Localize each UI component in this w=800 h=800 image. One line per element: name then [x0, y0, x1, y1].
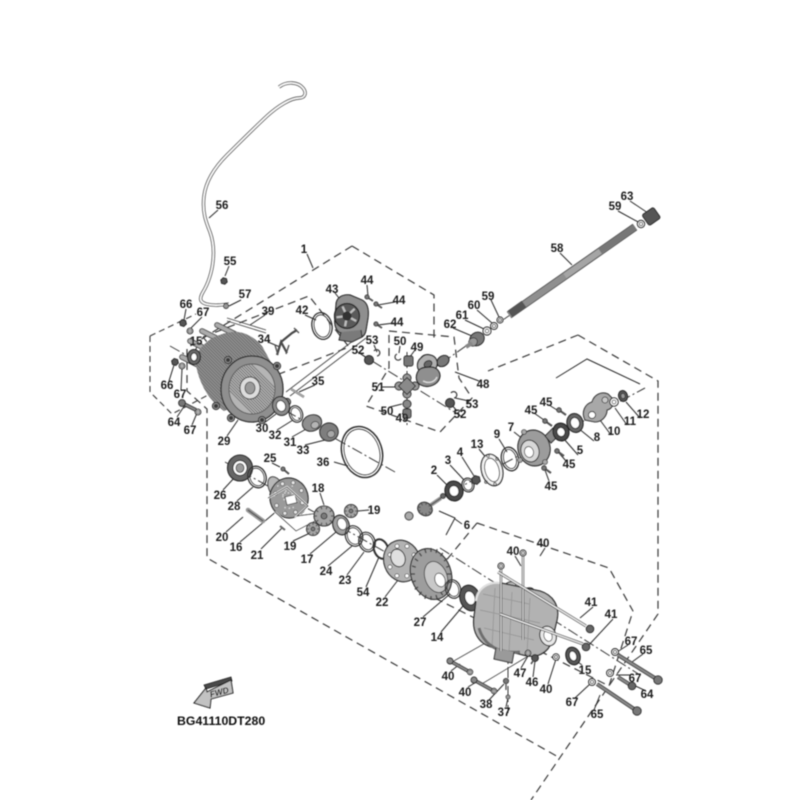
- svg-text:63: 63: [621, 191, 634, 203]
- svg-text:40: 40: [459, 687, 472, 699]
- svg-text:23: 23: [339, 575, 352, 587]
- svg-text:16: 16: [230, 542, 243, 554]
- svg-text:52: 52: [352, 345, 365, 357]
- svg-text:67: 67: [625, 636, 638, 648]
- svg-text:11: 11: [624, 416, 637, 428]
- svg-text:51: 51: [372, 382, 385, 394]
- svg-text:18: 18: [312, 483, 325, 495]
- svg-text:67: 67: [174, 389, 187, 401]
- svg-text:8: 8: [594, 432, 601, 444]
- svg-text:13: 13: [471, 439, 484, 451]
- svg-text:49: 49: [396, 413, 409, 425]
- svg-text:40: 40: [507, 546, 520, 558]
- svg-text:54: 54: [357, 587, 370, 599]
- svg-text:24: 24: [320, 566, 333, 578]
- svg-text:41: 41: [585, 597, 598, 609]
- svg-text:45: 45: [525, 405, 538, 417]
- svg-text:39: 39: [262, 306, 275, 318]
- svg-text:1: 1: [301, 244, 308, 256]
- svg-text:45: 45: [540, 397, 553, 409]
- svg-text:43: 43: [326, 284, 339, 296]
- svg-text:14: 14: [431, 632, 444, 644]
- svg-text:40: 40: [540, 684, 553, 696]
- svg-text:49: 49: [411, 342, 424, 354]
- svg-text:31: 31: [284, 437, 297, 449]
- svg-text:28: 28: [228, 501, 241, 513]
- svg-text:58: 58: [551, 243, 564, 255]
- svg-text:BG41110DT280: BG41110DT280: [177, 714, 265, 728]
- svg-text:45: 45: [545, 481, 558, 493]
- svg-text:56: 56: [216, 200, 229, 212]
- svg-text:17: 17: [301, 554, 314, 566]
- svg-text:44: 44: [361, 275, 374, 287]
- svg-text:66: 66: [180, 299, 193, 311]
- svg-text:42: 42: [296, 305, 309, 317]
- svg-text:29: 29: [218, 436, 231, 448]
- svg-text:33: 33: [297, 445, 310, 457]
- svg-text:65: 65: [640, 645, 653, 657]
- svg-text:26: 26: [214, 490, 227, 502]
- svg-text:53: 53: [466, 399, 479, 411]
- svg-text:19: 19: [284, 541, 297, 553]
- svg-text:38: 38: [480, 699, 493, 711]
- svg-text:36: 36: [317, 457, 330, 469]
- svg-text:32: 32: [269, 430, 282, 442]
- svg-text:46: 46: [526, 677, 539, 689]
- svg-text:47: 47: [514, 668, 527, 680]
- svg-text:25: 25: [264, 453, 277, 465]
- svg-text:6: 6: [464, 520, 470, 532]
- svg-text:9: 9: [494, 429, 500, 441]
- svg-text:5: 5: [577, 445, 584, 457]
- svg-text:4: 4: [457, 447, 464, 459]
- svg-text:67: 67: [629, 673, 642, 685]
- svg-text:55: 55: [224, 256, 237, 268]
- svg-text:50: 50: [394, 336, 407, 348]
- svg-text:62: 62: [444, 319, 457, 331]
- svg-text:48: 48: [477, 379, 490, 391]
- svg-text:59: 59: [482, 291, 495, 303]
- svg-text:66: 66: [161, 380, 174, 392]
- svg-text:45: 45: [563, 459, 576, 471]
- svg-text:65: 65: [591, 709, 604, 721]
- svg-text:59: 59: [609, 201, 622, 213]
- svg-text:40: 40: [442, 671, 455, 683]
- svg-text:21: 21: [251, 550, 264, 562]
- svg-text:22: 22: [376, 597, 389, 609]
- svg-text:53: 53: [366, 335, 379, 347]
- svg-text:35: 35: [312, 376, 325, 388]
- svg-text:57: 57: [239, 289, 252, 301]
- svg-text:10: 10: [608, 426, 621, 438]
- svg-text:7: 7: [508, 422, 514, 434]
- svg-text:15: 15: [579, 665, 592, 677]
- svg-text:40: 40: [537, 538, 550, 550]
- svg-text:67: 67: [566, 697, 579, 709]
- svg-text:41: 41: [605, 609, 618, 621]
- svg-text:44: 44: [391, 317, 404, 329]
- svg-text:27: 27: [414, 617, 427, 629]
- svg-text:67: 67: [184, 425, 197, 437]
- svg-text:20: 20: [216, 532, 229, 544]
- svg-text:12: 12: [637, 409, 650, 421]
- svg-text:67: 67: [197, 307, 210, 319]
- svg-text:30: 30: [256, 423, 269, 435]
- svg-text:19: 19: [368, 505, 381, 517]
- svg-text:44: 44: [393, 295, 406, 307]
- svg-text:64: 64: [168, 417, 181, 429]
- svg-text:50: 50: [381, 406, 394, 418]
- svg-text:37: 37: [498, 707, 511, 719]
- svg-text:3: 3: [445, 455, 451, 467]
- svg-text:2: 2: [431, 465, 437, 477]
- svg-text:52: 52: [454, 409, 467, 421]
- svg-text:64: 64: [641, 689, 654, 701]
- svg-text:61: 61: [456, 310, 469, 322]
- svg-text:15: 15: [190, 336, 203, 348]
- svg-text:34: 34: [258, 334, 271, 346]
- svg-text:60: 60: [468, 300, 481, 312]
